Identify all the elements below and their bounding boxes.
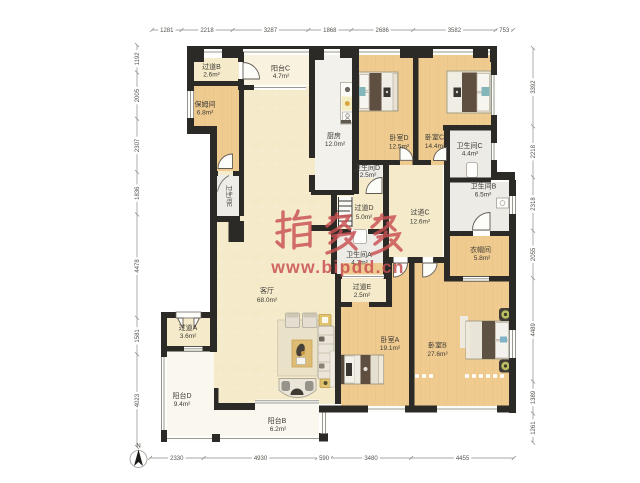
svg-text:2.5m²: 2.5m²	[360, 172, 377, 179]
svg-text:12.0m²: 12.0m²	[325, 141, 346, 148]
svg-text:6.5m²: 6.5m²	[475, 192, 492, 199]
svg-text:590: 590	[319, 456, 330, 462]
svg-text:2330: 2330	[170, 456, 184, 462]
svg-text:4478: 4478	[135, 259, 141, 273]
svg-text:12.5m²: 12.5m²	[389, 144, 410, 151]
svg-text:19.1m²: 19.1m²	[380, 345, 401, 352]
svg-text:过道C: 过道C	[410, 208, 429, 217]
svg-text:6.2m²: 6.2m²	[270, 426, 287, 433]
svg-text:2686: 2686	[376, 28, 390, 34]
svg-text:保姆间: 保姆间	[195, 100, 216, 109]
svg-text:4455: 4455	[456, 456, 470, 462]
svg-text:阳台C: 阳台C	[271, 64, 290, 73]
svg-text:6.8m²: 6.8m²	[197, 110, 214, 117]
svg-text:卫生间D: 卫生间D	[354, 163, 380, 172]
svg-text:3287: 3287	[264, 28, 278, 34]
svg-text:2.5m²: 2.5m²	[354, 292, 371, 299]
svg-text:卫生间E: 卫生间E	[225, 185, 233, 207]
svg-text:过道D: 过道D	[354, 203, 373, 212]
svg-text:过道E: 过道E	[353, 282, 372, 291]
svg-text:卫生间B: 卫生间B	[471, 182, 497, 191]
svg-text:卧室B: 卧室B	[428, 341, 447, 350]
svg-text:2005: 2005	[135, 88, 141, 102]
svg-text:3392: 3392	[531, 80, 537, 94]
svg-text:1868: 1868	[323, 28, 337, 34]
svg-text:3.6m²: 3.6m²	[180, 333, 197, 340]
svg-text:2307: 2307	[135, 138, 141, 152]
svg-text:68.0m²: 68.0m²	[257, 297, 278, 304]
svg-text:2055: 2055	[531, 247, 537, 261]
svg-text:5.0m²: 5.0m²	[356, 214, 373, 221]
svg-text:2218: 2218	[531, 144, 537, 158]
svg-text:4930: 4930	[254, 456, 268, 462]
svg-text:阳台B: 阳台B	[268, 416, 287, 425]
svg-text:卧室A: 卧室A	[381, 335, 400, 344]
svg-text:2318: 2318	[531, 197, 537, 211]
svg-text:1389: 1389	[531, 390, 537, 404]
svg-text:4489: 4489	[531, 322, 537, 336]
svg-text:4.4m²: 4.4m²	[462, 151, 479, 158]
svg-text:客厅: 客厅	[260, 286, 274, 295]
svg-text:4023: 4023	[135, 393, 141, 407]
svg-text:卧室D: 卧室D	[389, 133, 408, 142]
svg-text:卫生间C: 卫生间C	[456, 141, 482, 150]
svg-text:卧室C: 卧室C	[425, 133, 444, 142]
svg-text:1581: 1581	[135, 329, 141, 343]
svg-text:5.8m²: 5.8m²	[474, 255, 491, 262]
svg-text:1836: 1836	[135, 186, 141, 200]
svg-text:27.6m²: 27.6m²	[427, 351, 448, 358]
svg-text:阳台D: 阳台D	[172, 391, 191, 400]
svg-text:2218: 2218	[200, 28, 214, 34]
svg-text:过道B: 过道B	[202, 62, 221, 71]
svg-text:3480: 3480	[364, 456, 378, 462]
svg-text:衣帽间: 衣帽间	[470, 245, 491, 254]
svg-text:1192: 1192	[135, 52, 141, 66]
svg-text:N: N	[136, 444, 140, 450]
svg-text:12.6m²: 12.6m²	[410, 219, 431, 226]
svg-text:厨房: 厨房	[327, 131, 341, 140]
svg-text:1281: 1281	[160, 28, 174, 34]
svg-text:9.4m²: 9.4m²	[174, 401, 191, 408]
svg-text:1261: 1261	[531, 421, 537, 435]
svg-text:753: 753	[499, 28, 510, 34]
svg-text:过道A: 过道A	[179, 323, 198, 332]
svg-text:www.bipdd.cn: www.bipdd.cn	[270, 257, 405, 277]
svg-text:3582: 3582	[448, 28, 462, 34]
svg-text:4.7m²: 4.7m²	[273, 73, 290, 80]
svg-text:2.6m²: 2.6m²	[203, 72, 220, 79]
svg-text:14.4m²: 14.4m²	[425, 143, 446, 150]
